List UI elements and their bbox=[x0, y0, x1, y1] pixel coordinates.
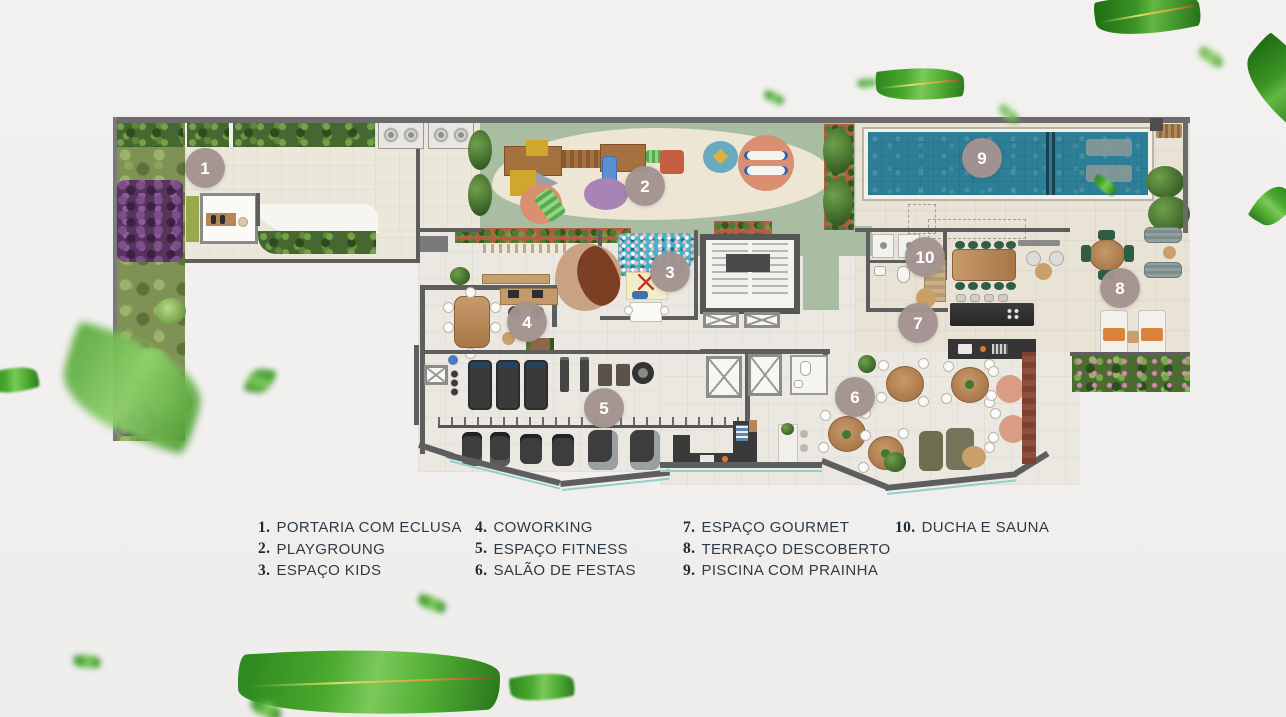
chair bbox=[898, 428, 909, 439]
legend-column: 1.PORTARIA COM ECLUSA 2.PLAYGROUNG 3.ESP… bbox=[258, 517, 462, 582]
bush bbox=[468, 130, 492, 170]
shower-head-icon bbox=[880, 242, 887, 249]
tank-icon bbox=[383, 127, 399, 143]
hedge-row bbox=[115, 121, 183, 147]
pool-lane-line bbox=[1052, 132, 1055, 195]
elliptical-machine bbox=[588, 430, 618, 470]
chair bbox=[981, 241, 991, 249]
plan-marker-9: 9 bbox=[962, 138, 1002, 178]
chair bbox=[1081, 245, 1091, 262]
chair bbox=[443, 302, 454, 313]
play-square bbox=[660, 150, 684, 174]
chair bbox=[820, 410, 831, 421]
glass-line bbox=[660, 470, 822, 472]
gatehouse-planter bbox=[186, 196, 199, 242]
stair-landing bbox=[726, 254, 770, 272]
legend-item-10: 10.DUCHA E SAUNA bbox=[895, 517, 1049, 539]
washer-icon bbox=[448, 355, 458, 365]
play-structure-bridge bbox=[562, 150, 600, 168]
bush bbox=[823, 178, 853, 226]
wall bbox=[855, 228, 1070, 232]
legend-number: 8. bbox=[683, 540, 695, 558]
legend-number: 2. bbox=[258, 540, 270, 558]
legend-number: 1. bbox=[258, 519, 270, 537]
chair bbox=[624, 306, 633, 315]
play-structure-box bbox=[526, 140, 548, 156]
chair bbox=[1006, 241, 1016, 249]
bar-stool bbox=[970, 294, 980, 302]
legend-number: 7. bbox=[683, 519, 695, 537]
flower-hedge bbox=[1072, 356, 1190, 392]
chair bbox=[955, 241, 965, 249]
legend-label: DUCHA E SAUNA bbox=[922, 519, 1050, 536]
legend-item-1: 1.PORTARIA COM ECLUSA bbox=[258, 517, 462, 539]
chair bbox=[1098, 230, 1115, 240]
legend-number: 9. bbox=[683, 562, 695, 580]
legend-item-4: 4.COWORKING bbox=[475, 517, 636, 539]
legend-label: PISCINA COM PRAINHA bbox=[701, 562, 878, 579]
chair bbox=[990, 408, 1001, 419]
floor-plan: 1 2 3 4 5 6 7 8 9 10 bbox=[0, 0, 1286, 717]
chair bbox=[981, 282, 991, 290]
hedge-row bbox=[187, 121, 229, 147]
weight-rack bbox=[560, 360, 569, 392]
legend-item-3: 3.ESPAÇO KIDS bbox=[258, 560, 462, 582]
gym-machine bbox=[552, 434, 574, 466]
legend-column: 10.DUCHA E SAUNA bbox=[895, 517, 1049, 539]
sofa bbox=[919, 431, 943, 471]
terrace-table bbox=[1089, 239, 1125, 271]
person-icon bbox=[211, 215, 216, 224]
legend-label: ESPAÇO FITNESS bbox=[493, 541, 628, 558]
towel bbox=[1141, 328, 1163, 341]
wall-block bbox=[420, 236, 448, 252]
wall bbox=[414, 345, 419, 425]
seesaw-bar bbox=[744, 151, 788, 160]
chair bbox=[918, 396, 929, 407]
bar-counter bbox=[950, 303, 1034, 326]
sideboard bbox=[482, 274, 550, 284]
hedge-row bbox=[258, 231, 376, 254]
plant-centerpiece bbox=[842, 430, 851, 439]
legend-number: 4. bbox=[475, 519, 487, 537]
elliptical-machine bbox=[630, 430, 660, 470]
chair bbox=[818, 442, 829, 453]
legend-item-7: 7.ESPAÇO GOURMET bbox=[683, 517, 891, 539]
sink-icon bbox=[874, 266, 886, 276]
legend-label: PLAYGROUNG bbox=[276, 541, 385, 558]
bar-stool bbox=[984, 294, 994, 302]
floor-plan-page: 1 2 3 4 5 6 7 8 9 10 1.PORTARIA COM ECLU… bbox=[0, 0, 1286, 717]
chair bbox=[941, 393, 952, 404]
treadmill bbox=[468, 360, 492, 410]
legend-label: ESPAÇO KIDS bbox=[276, 562, 381, 579]
bush bbox=[823, 128, 853, 174]
chair bbox=[860, 430, 871, 441]
toy-car-icon bbox=[632, 291, 648, 299]
chair bbox=[490, 302, 501, 313]
weight-plate bbox=[632, 362, 654, 384]
legend-label: PORTARIA COM ECLUSA bbox=[276, 519, 461, 536]
plan-marker-5: 5 bbox=[584, 388, 624, 428]
feature-wall bbox=[1022, 352, 1036, 464]
toilet-icon bbox=[800, 361, 811, 376]
stool bbox=[800, 430, 808, 438]
chair bbox=[994, 241, 1004, 249]
chair bbox=[660, 306, 669, 315]
bar-stool bbox=[956, 294, 966, 302]
plant bbox=[858, 355, 876, 373]
legend-label: SALÃO DE FESTAS bbox=[493, 562, 635, 579]
party-table bbox=[886, 366, 924, 402]
plant bbox=[781, 423, 794, 435]
legend-column: 7.ESPAÇO GOURMET 8.TERRAÇO DESCOBERTO 9.… bbox=[683, 517, 891, 582]
legend-item-5: 5.ESPAÇO FITNESS bbox=[475, 539, 636, 561]
mirror-wall bbox=[438, 425, 744, 428]
wall bbox=[660, 462, 822, 468]
treadmill bbox=[496, 360, 520, 410]
elevator bbox=[706, 356, 742, 398]
perimeter-wall bbox=[1183, 121, 1188, 233]
wall bbox=[694, 230, 698, 320]
plan-marker-4: 4 bbox=[507, 302, 547, 342]
tree bbox=[1146, 166, 1184, 198]
chair bbox=[490, 322, 501, 333]
legend-number: 5. bbox=[475, 540, 487, 558]
purple-flowerbed bbox=[117, 180, 183, 262]
exercise-mat bbox=[616, 364, 630, 386]
cafe-table bbox=[1049, 251, 1064, 266]
pergola bbox=[483, 244, 569, 253]
chair bbox=[943, 361, 954, 372]
sun-lounger bbox=[1144, 262, 1182, 278]
bush bbox=[468, 174, 492, 216]
stool bbox=[800, 444, 808, 452]
elevator bbox=[748, 354, 782, 396]
perimeter-wall bbox=[115, 117, 1190, 123]
person-icon bbox=[220, 215, 225, 224]
chair bbox=[984, 442, 995, 453]
cafe-table bbox=[1035, 263, 1052, 280]
chair bbox=[968, 241, 978, 249]
plant bbox=[450, 267, 470, 285]
plan-marker-6: 6 bbox=[835, 377, 875, 417]
appliance-icon bbox=[980, 346, 986, 352]
monitor-icon bbox=[532, 290, 543, 298]
cooktop-icon bbox=[1006, 308, 1020, 320]
garden-band bbox=[803, 252, 839, 310]
chair bbox=[443, 322, 454, 333]
plan-marker-8: 8 bbox=[1100, 268, 1140, 308]
counter-top bbox=[749, 420, 757, 432]
chair bbox=[994, 282, 1004, 290]
pool-lane-line bbox=[1046, 132, 1049, 195]
tank-icon bbox=[433, 127, 449, 143]
elevator bbox=[744, 312, 780, 328]
storage-crate bbox=[424, 365, 448, 385]
wall bbox=[418, 228, 482, 232]
weight-rack bbox=[580, 360, 589, 392]
coffee-table bbox=[962, 446, 986, 468]
grill-icon bbox=[992, 344, 1008, 354]
chair bbox=[988, 366, 999, 377]
chair bbox=[1006, 282, 1016, 290]
wall bbox=[420, 285, 425, 357]
chair bbox=[238, 217, 248, 227]
wall bbox=[185, 259, 420, 263]
legend-label: TERRAÇO DESCOBERTO bbox=[701, 541, 890, 558]
legend-number: 10. bbox=[895, 519, 916, 537]
tank-icon bbox=[453, 127, 469, 143]
plant bbox=[884, 452, 906, 472]
shelf bbox=[1018, 240, 1060, 246]
monitor-icon bbox=[508, 290, 519, 298]
legend-item-6: 6.SALÃO DE FESTAS bbox=[475, 560, 636, 582]
chair bbox=[955, 282, 965, 290]
fridge-icon bbox=[736, 425, 748, 441]
hedge-row bbox=[233, 121, 375, 147]
exercise-mat bbox=[598, 364, 612, 386]
legend-item-8: 8.TERRAÇO DESCOBERTO bbox=[683, 539, 891, 561]
dining-table bbox=[952, 249, 1016, 281]
sun-lounger bbox=[1144, 227, 1182, 243]
bar-stool bbox=[998, 294, 1008, 302]
legend-item-2: 2.PLAYGROUNG bbox=[258, 539, 462, 561]
legend-label: COWORKING bbox=[493, 519, 592, 536]
corner-table bbox=[996, 375, 1024, 403]
legend-label: ESPAÇO GOURMET bbox=[701, 519, 849, 536]
submerged-lounger bbox=[1086, 139, 1132, 156]
elevator bbox=[703, 312, 739, 328]
chair bbox=[465, 287, 476, 298]
legend-number: 3. bbox=[258, 562, 270, 580]
plan-marker-3: 3 bbox=[650, 252, 690, 292]
chair bbox=[918, 358, 929, 369]
legend-column: 4.COWORKING 5.ESPAÇO FITNESS 6.SALÃO DE … bbox=[475, 517, 636, 582]
kids-table bbox=[630, 302, 662, 322]
chair bbox=[1124, 245, 1134, 262]
plan-marker-1: 1 bbox=[185, 148, 225, 188]
chair bbox=[878, 360, 889, 371]
plan-marker-10: 10 bbox=[905, 237, 945, 277]
towel bbox=[1103, 328, 1125, 341]
legend-item-9: 9.PISCINA COM PRAINHA bbox=[683, 560, 891, 582]
legend-number: 6. bbox=[475, 562, 487, 580]
sink-icon bbox=[794, 380, 803, 388]
chair bbox=[986, 390, 997, 401]
chair bbox=[858, 462, 869, 473]
play-ellipse bbox=[584, 178, 628, 210]
pillar bbox=[1150, 118, 1163, 131]
treadmill bbox=[524, 360, 548, 410]
plan-marker-2: 2 bbox=[625, 166, 665, 206]
wall bbox=[866, 230, 870, 310]
gym-machine bbox=[520, 434, 542, 464]
plant-centerpiece bbox=[965, 380, 974, 389]
chair bbox=[968, 282, 978, 290]
plan-marker-7: 7 bbox=[898, 303, 938, 343]
dumbbell-rack bbox=[449, 369, 460, 397]
seesaw-circle bbox=[738, 135, 794, 191]
gym-machine bbox=[490, 432, 510, 466]
meeting-table bbox=[454, 296, 490, 348]
side-table bbox=[1163, 246, 1176, 259]
seesaw-bar bbox=[744, 166, 788, 175]
tank-icon bbox=[403, 127, 419, 143]
chair bbox=[876, 392, 887, 403]
plant bbox=[156, 298, 186, 324]
side-table bbox=[1127, 331, 1139, 343]
wall bbox=[256, 193, 260, 226]
microwave-icon bbox=[958, 344, 972, 354]
